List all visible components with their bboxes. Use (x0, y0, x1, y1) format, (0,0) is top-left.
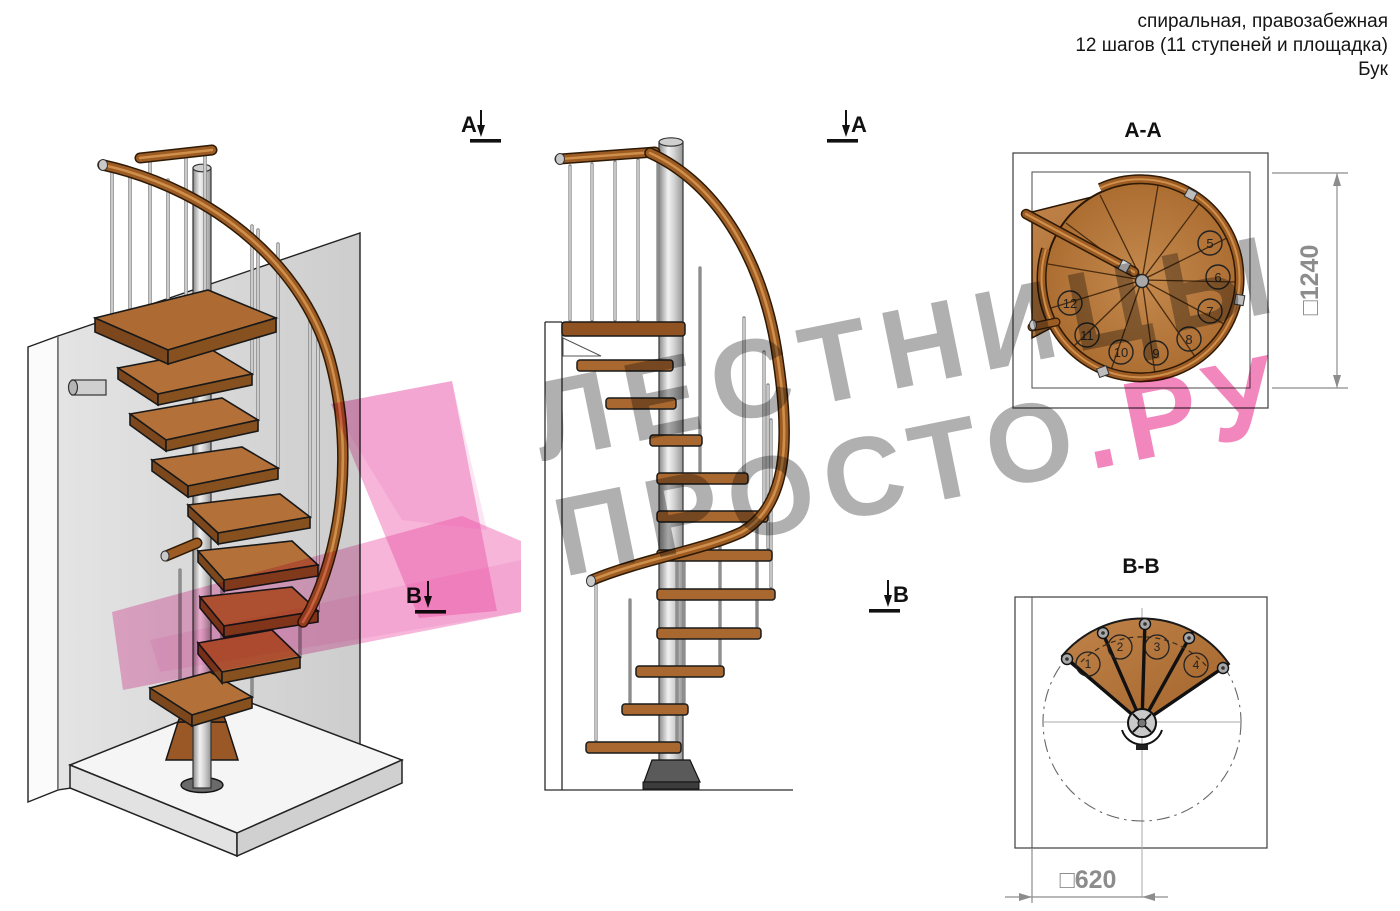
dimension-label: □620 (1060, 866, 1117, 894)
step (577, 360, 673, 371)
view-title: В-В (1122, 555, 1159, 578)
section-letter: В (406, 583, 422, 608)
section-marker-b-left: В (406, 581, 446, 614)
step (650, 435, 702, 446)
stair-type: спиральная, правозабежная (1075, 10, 1388, 34)
elevation-view (545, 138, 793, 790)
landing-board (562, 322, 685, 336)
section-marker-a-right: А (827, 110, 867, 143)
step-number: 10 (1114, 345, 1128, 360)
dimension-1240: □1240 (1272, 173, 1348, 388)
section-letter: В (893, 582, 909, 607)
step (636, 666, 724, 677)
stair-config: 12 шагов (11 ступеней и площадка) (1075, 34, 1388, 58)
step-number: 3 (1154, 640, 1161, 654)
center-pole (643, 138, 700, 789)
step-number: 12 (1063, 296, 1077, 311)
stair-material: Бук (1075, 58, 1388, 82)
wall-dowel (69, 380, 107, 395)
step-number: 8 (1185, 332, 1192, 347)
title-block: спиральная, правозабежная 12 шагов (11 с… (1075, 10, 1388, 82)
pole-top (1136, 275, 1149, 288)
step (622, 704, 688, 715)
staircase-drawing: А А В В А-А (0, 0, 1400, 911)
step (606, 398, 676, 409)
step-number: 4 (1193, 658, 1200, 672)
step-number: 5 (1206, 236, 1213, 251)
step-number: 9 (1152, 346, 1159, 361)
section-aa-view: А-А (1013, 119, 1348, 408)
section-marker-b-right: В (869, 580, 909, 613)
step-number: 11 (1080, 328, 1094, 343)
step (657, 589, 775, 600)
dimension-label: □1240 (1296, 245, 1324, 316)
step (657, 628, 761, 639)
dimension-620: □620 (1005, 848, 1168, 903)
step-number: 2 (1117, 640, 1124, 654)
technical-drawing-page: А А В В А-А (0, 0, 1400, 911)
section-bb-view: В-В (1005, 555, 1267, 903)
view-title: А-А (1124, 119, 1161, 142)
isometric-view (28, 150, 402, 856)
step-number: 6 (1214, 270, 1221, 285)
step (586, 742, 681, 753)
step-number: 1 (1085, 657, 1092, 671)
section-letter: А (461, 112, 477, 137)
step-number: 7 (1206, 304, 1213, 319)
section-marker-a-left: А (461, 110, 501, 143)
section-letter: А (851, 112, 867, 137)
step (657, 473, 748, 484)
